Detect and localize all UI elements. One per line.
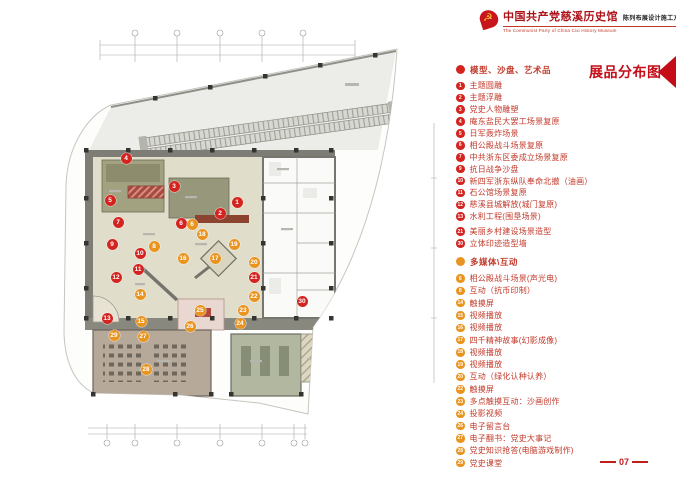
plan-markers: 1234567910111213213068141516171819202223… [45, 28, 445, 475]
plan-marker-media-29: 29 [109, 330, 120, 341]
plan-marker-model-9: 9 [107, 239, 118, 250]
legend-item-number: 20 [456, 373, 465, 382]
legend-item: 4庵东盐民大罢工场景复原 [456, 116, 671, 128]
plan-marker-media-14: 14 [135, 289, 146, 300]
legend: 模型、沙盘、艺术品1主题圆雕2主题浮雕3党史人物雕塑4庵东盐民大罢工场景复原5日… [456, 63, 671, 469]
legend-item-number: 5 [456, 129, 465, 138]
legend-item-label: 四千精神故事(幻影成像) [470, 335, 558, 346]
plan-marker-media-22: 22 [249, 291, 260, 302]
legend-item-label: 中共浙东区委成立场景复原 [470, 152, 568, 163]
legend-section-multimedia: 多媒体\互动 [456, 255, 671, 268]
legend-item-number: 30 [456, 239, 465, 248]
plan-marker-model-5: 5 [105, 195, 116, 206]
plan-marker-media-19: 19 [229, 239, 240, 250]
legend-item: 16视频播放 [456, 322, 671, 334]
legend-item: 23多点触摸互动：沙画创作 [456, 395, 671, 407]
legend-item-label: 电子翻书：党史大事记 [470, 433, 552, 444]
document-subtitle: 陈列布展设计施工方案 [623, 13, 676, 22]
legend-item-label: 电子留言台 [470, 421, 511, 432]
legend-item-label: 视频播放 [470, 359, 503, 370]
legend-item: 30立体印迹造型墙 [456, 238, 671, 250]
legend-item-label: 水利工程(围垦场景) [470, 211, 541, 222]
museum-title: 中国共产党慈溪历史馆 [503, 8, 618, 24]
cpc-emblem-icon: ☭ [480, 8, 500, 30]
legend-item-label: 投影视频 [470, 408, 503, 419]
legend-item-label: 主题圆雕 [470, 80, 503, 91]
plan-marker-media-16: 16 [178, 253, 189, 264]
legend-item-number: 7 [456, 153, 465, 162]
legend-item: 1主题圆雕 [456, 80, 671, 92]
legend-item: 19视频播放 [456, 359, 671, 371]
legend-item: 8互动（抗币印制） [456, 285, 671, 297]
legend-item: 7中共浙东区委成立场景复原 [456, 151, 671, 163]
legend-item: 13水利工程(围垦场景) [456, 211, 671, 223]
plan-marker-media-23: 23 [238, 305, 249, 316]
legend-item-number: 3 [456, 105, 465, 114]
legend-item-number: 1 [456, 82, 465, 91]
legend-item-number: 22 [456, 385, 465, 394]
legend-item-label: 党史知识抢答(电脑游戏制作) [470, 445, 574, 456]
plan-marker-media-6: 6 [187, 219, 198, 230]
page: ☭ 中国共产党慈溪历史馆 陈列布展设计施工方案 The Communist Pa… [0, 0, 676, 477]
legend-item-label: 主题浮雕 [470, 92, 503, 103]
legend-item-number: 6 [456, 141, 465, 150]
legend-item-label: 互动（绿化认种认养） [470, 371, 552, 382]
header-rule [503, 26, 676, 27]
legend-item-number: 18 [456, 348, 465, 357]
plan-marker-model-12: 12 [111, 272, 122, 283]
legend-item-number: 8 [456, 287, 465, 296]
plan-marker-media-17: 17 [210, 253, 221, 264]
legend-item: 2主题浮雕 [456, 92, 671, 104]
legend-item-label: 视频播放 [470, 310, 503, 321]
plan-marker-model-13: 13 [102, 313, 113, 324]
museum-title-en: The Communist Party of China Cixi Histor… [503, 28, 676, 33]
legend-item-label: 多点触摸互动：沙画创作 [470, 396, 560, 407]
legend-item-label: 视频播放 [470, 322, 503, 333]
header: ☭ 中国共产党慈溪历史馆 陈列布展设计施工方案 The Communist Pa… [480, 8, 668, 33]
legend-item: 28党史知识抢答(电脑游戏制作) [456, 445, 671, 457]
plan-marker-model-1: 1 [232, 197, 243, 208]
legend-item-number: 27 [456, 434, 465, 443]
legend-section-dot-icon [456, 65, 465, 74]
legend-item-label: 石公馆场景复原 [470, 187, 527, 198]
plan-marker-model-3: 3 [169, 181, 180, 192]
plan-marker-media-28: 28 [141, 364, 152, 375]
legend-item: 3党史人物雕塑 [456, 104, 671, 116]
plan-marker-model-7: 7 [113, 217, 124, 228]
legend-item-number: 6 [456, 274, 465, 283]
legend-item-label: 相公殿战斗场景复原 [470, 140, 544, 151]
plan-marker-model-30: 30 [297, 296, 308, 307]
legend-item-number: 9 [456, 165, 465, 174]
plan-marker-media-18: 18 [197, 229, 208, 240]
legend-item: 10新四军浙东纵队奉命北撤（油画） [456, 175, 671, 187]
legend-item-label: 日军轰炸场景 [470, 128, 519, 139]
legend-item-label: 立体印迹造型墙 [470, 238, 527, 249]
legend-item: 22触摸屏 [456, 383, 671, 395]
legend-item-number: 12 [456, 201, 465, 210]
legend-item-label: 庵东盐民大罢工场景复原 [470, 116, 560, 127]
page-number: 07 [600, 457, 648, 467]
legend-item: 26电子留言台 [456, 420, 671, 432]
plan-marker-media-25: 25 [195, 305, 206, 316]
legend-item-number: 21 [456, 227, 465, 236]
plan-marker-media-8: 8 [149, 241, 160, 252]
legend-item: 14触摸屏 [456, 297, 671, 309]
plan-marker-model-10: 10 [135, 248, 146, 259]
legend-item: 5日军轰炸场景 [456, 128, 671, 140]
legend-item-label: 触摸屏 [470, 384, 495, 395]
legend-item-label: 慈溪县城解放(城门复原) [470, 199, 558, 210]
legend-item: 9抗日战争沙盘 [456, 163, 671, 175]
legend-section-models: 模型、沙盘、艺术品 [456, 63, 671, 76]
plan-marker-model-4: 4 [121, 153, 132, 164]
legend-section-label: 多媒体\互动 [470, 256, 518, 268]
plan-marker-model-21: 21 [249, 272, 260, 283]
legend-section-label: 模型、沙盘、艺术品 [470, 64, 551, 76]
legend-item-label: 视频播放 [470, 347, 503, 358]
legend-item-number: 10 [456, 177, 465, 186]
legend-item: 24投影视频 [456, 408, 671, 420]
legend-item-number: 19 [456, 360, 465, 369]
plan-marker-media-26: 26 [185, 321, 196, 332]
legend-item: 20互动（绿化认种认养） [456, 371, 671, 383]
legend-item-number: 16 [456, 324, 465, 333]
legend-item: 11石公馆场景复原 [456, 187, 671, 199]
legend-item: 12慈溪县城解放(城门复原) [456, 199, 671, 211]
legend-item-number: 15 [456, 311, 465, 320]
legend-item-label: 触摸屏 [470, 298, 495, 309]
legend-item-label: 美丽乡村建设场景造型 [470, 226, 552, 237]
legend-item-number: 14 [456, 299, 465, 308]
legend-item: 15视频播放 [456, 309, 671, 321]
plan-marker-media-20: 20 [249, 257, 260, 268]
legend-item: 21美丽乡村建设场景造型 [456, 226, 671, 238]
legend-item-number: 29 [456, 459, 465, 468]
legend-item-number: 26 [456, 422, 465, 431]
legend-item-number: 13 [456, 212, 465, 221]
legend-item-label: 抗日战争沙盘 [470, 164, 519, 175]
legend-item-label: 党史人物雕塑 [470, 104, 519, 115]
plan-marker-model-2: 2 [215, 208, 226, 219]
legend-section-dot-icon [456, 257, 465, 266]
legend-item-number: 2 [456, 94, 465, 103]
legend-item-number: 23 [456, 397, 465, 406]
plan-marker-media-15: 15 [136, 316, 147, 327]
legend-item: 6相公殿战斗场景复原 [456, 139, 671, 151]
legend-item: 18视频播放 [456, 346, 671, 358]
plan-marker-model-11: 11 [133, 264, 144, 275]
legend-item-number: 17 [456, 336, 465, 345]
plan-marker-model-6: 6 [176, 218, 187, 229]
legend-item: 6相公殿战斗场景(声光电) [456, 272, 671, 284]
plan-marker-media-27: 27 [138, 331, 149, 342]
legend-item-number: 4 [456, 117, 465, 126]
legend-item-label: 党史课堂 [470, 458, 503, 469]
legend-item-number: 11 [456, 189, 465, 198]
legend-item-number: 28 [456, 447, 465, 456]
legend-item-number: 24 [456, 410, 465, 419]
legend-item-label: 相公殿战斗场景(声光电) [470, 273, 558, 284]
floor-plan: 1234567910111213213068141516171819202223… [45, 28, 445, 475]
plan-marker-media-24: 24 [235, 318, 246, 329]
legend-item-label: 互动（抗币印制） [470, 285, 536, 296]
legend-item: 17四千精神故事(幻影成像) [456, 334, 671, 346]
legend-item-label: 新四军浙东纵队奉命北撤（油画） [470, 176, 593, 187]
legend-item: 27电子翻书：党史大事记 [456, 432, 671, 444]
